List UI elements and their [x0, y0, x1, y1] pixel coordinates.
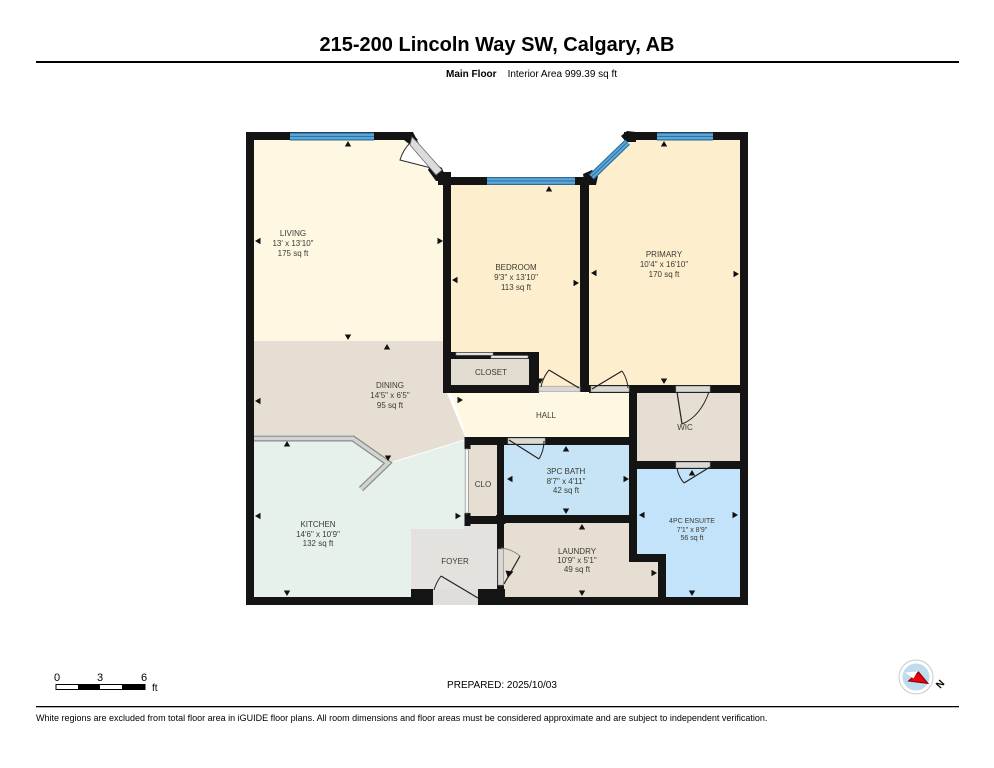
svg-text:14'6" x 10'9": 14'6" x 10'9": [296, 530, 340, 539]
svg-text:170 sq ft: 170 sq ft: [649, 270, 680, 279]
svg-text:6: 6: [141, 672, 147, 684]
svg-text:PREPARED: 2025/10/03: PREPARED: 2025/10/03: [447, 680, 557, 691]
svg-text:7'1" x 8'9": 7'1" x 8'9": [677, 527, 708, 534]
svg-text:KITCHEN: KITCHEN: [300, 520, 335, 529]
svg-text:56 sq ft: 56 sq ft: [681, 535, 704, 542]
svg-text:9'3" x 13'10": 9'3" x 13'10": [494, 273, 538, 282]
svg-text:HALL: HALL: [536, 411, 557, 420]
svg-text:10'4" x 16'10": 10'4" x 16'10": [640, 260, 688, 269]
svg-text:0: 0: [54, 672, 60, 684]
svg-text:13' x 13'10": 13' x 13'10": [272, 239, 313, 248]
svg-text:BEDROOM: BEDROOM: [495, 263, 537, 272]
svg-text:White regions are excluded fro: White regions are excluded from total fl…: [36, 713, 767, 723]
svg-text:PRIMARY: PRIMARY: [646, 250, 683, 259]
svg-text:10'9" x 5'1": 10'9" x 5'1": [557, 556, 597, 565]
svg-text:FOYER: FOYER: [441, 557, 469, 566]
svg-text:42 sq ft: 42 sq ft: [553, 486, 580, 495]
svg-text:DINING: DINING: [376, 381, 404, 390]
svg-text:LIVING: LIVING: [280, 229, 306, 238]
svg-text:4PC ENSUITE: 4PC ENSUITE: [669, 518, 715, 525]
svg-text:WIC: WIC: [677, 423, 693, 432]
svg-text:8'7" x 4'11": 8'7" x 4'11": [547, 477, 586, 486]
svg-text:3PC BATH: 3PC BATH: [547, 467, 586, 476]
svg-text:132 sq ft: 132 sq ft: [303, 539, 334, 548]
svg-text:CLO: CLO: [475, 480, 491, 489]
svg-text:175 sq ft: 175 sq ft: [278, 249, 309, 258]
svg-text:113 sq ft: 113 sq ft: [501, 283, 532, 292]
svg-text:3: 3: [97, 672, 103, 684]
svg-text:49 sq ft: 49 sq ft: [564, 565, 591, 574]
svg-text:N: N: [934, 678, 947, 691]
svg-text:ft: ft: [152, 683, 158, 694]
svg-text:CLOSET: CLOSET: [475, 368, 507, 377]
svg-text:14'5" x 6'5": 14'5" x 6'5": [370, 391, 410, 400]
svg-text:LAUNDRY: LAUNDRY: [558, 547, 597, 556]
svg-text:95 sq ft: 95 sq ft: [377, 401, 404, 410]
